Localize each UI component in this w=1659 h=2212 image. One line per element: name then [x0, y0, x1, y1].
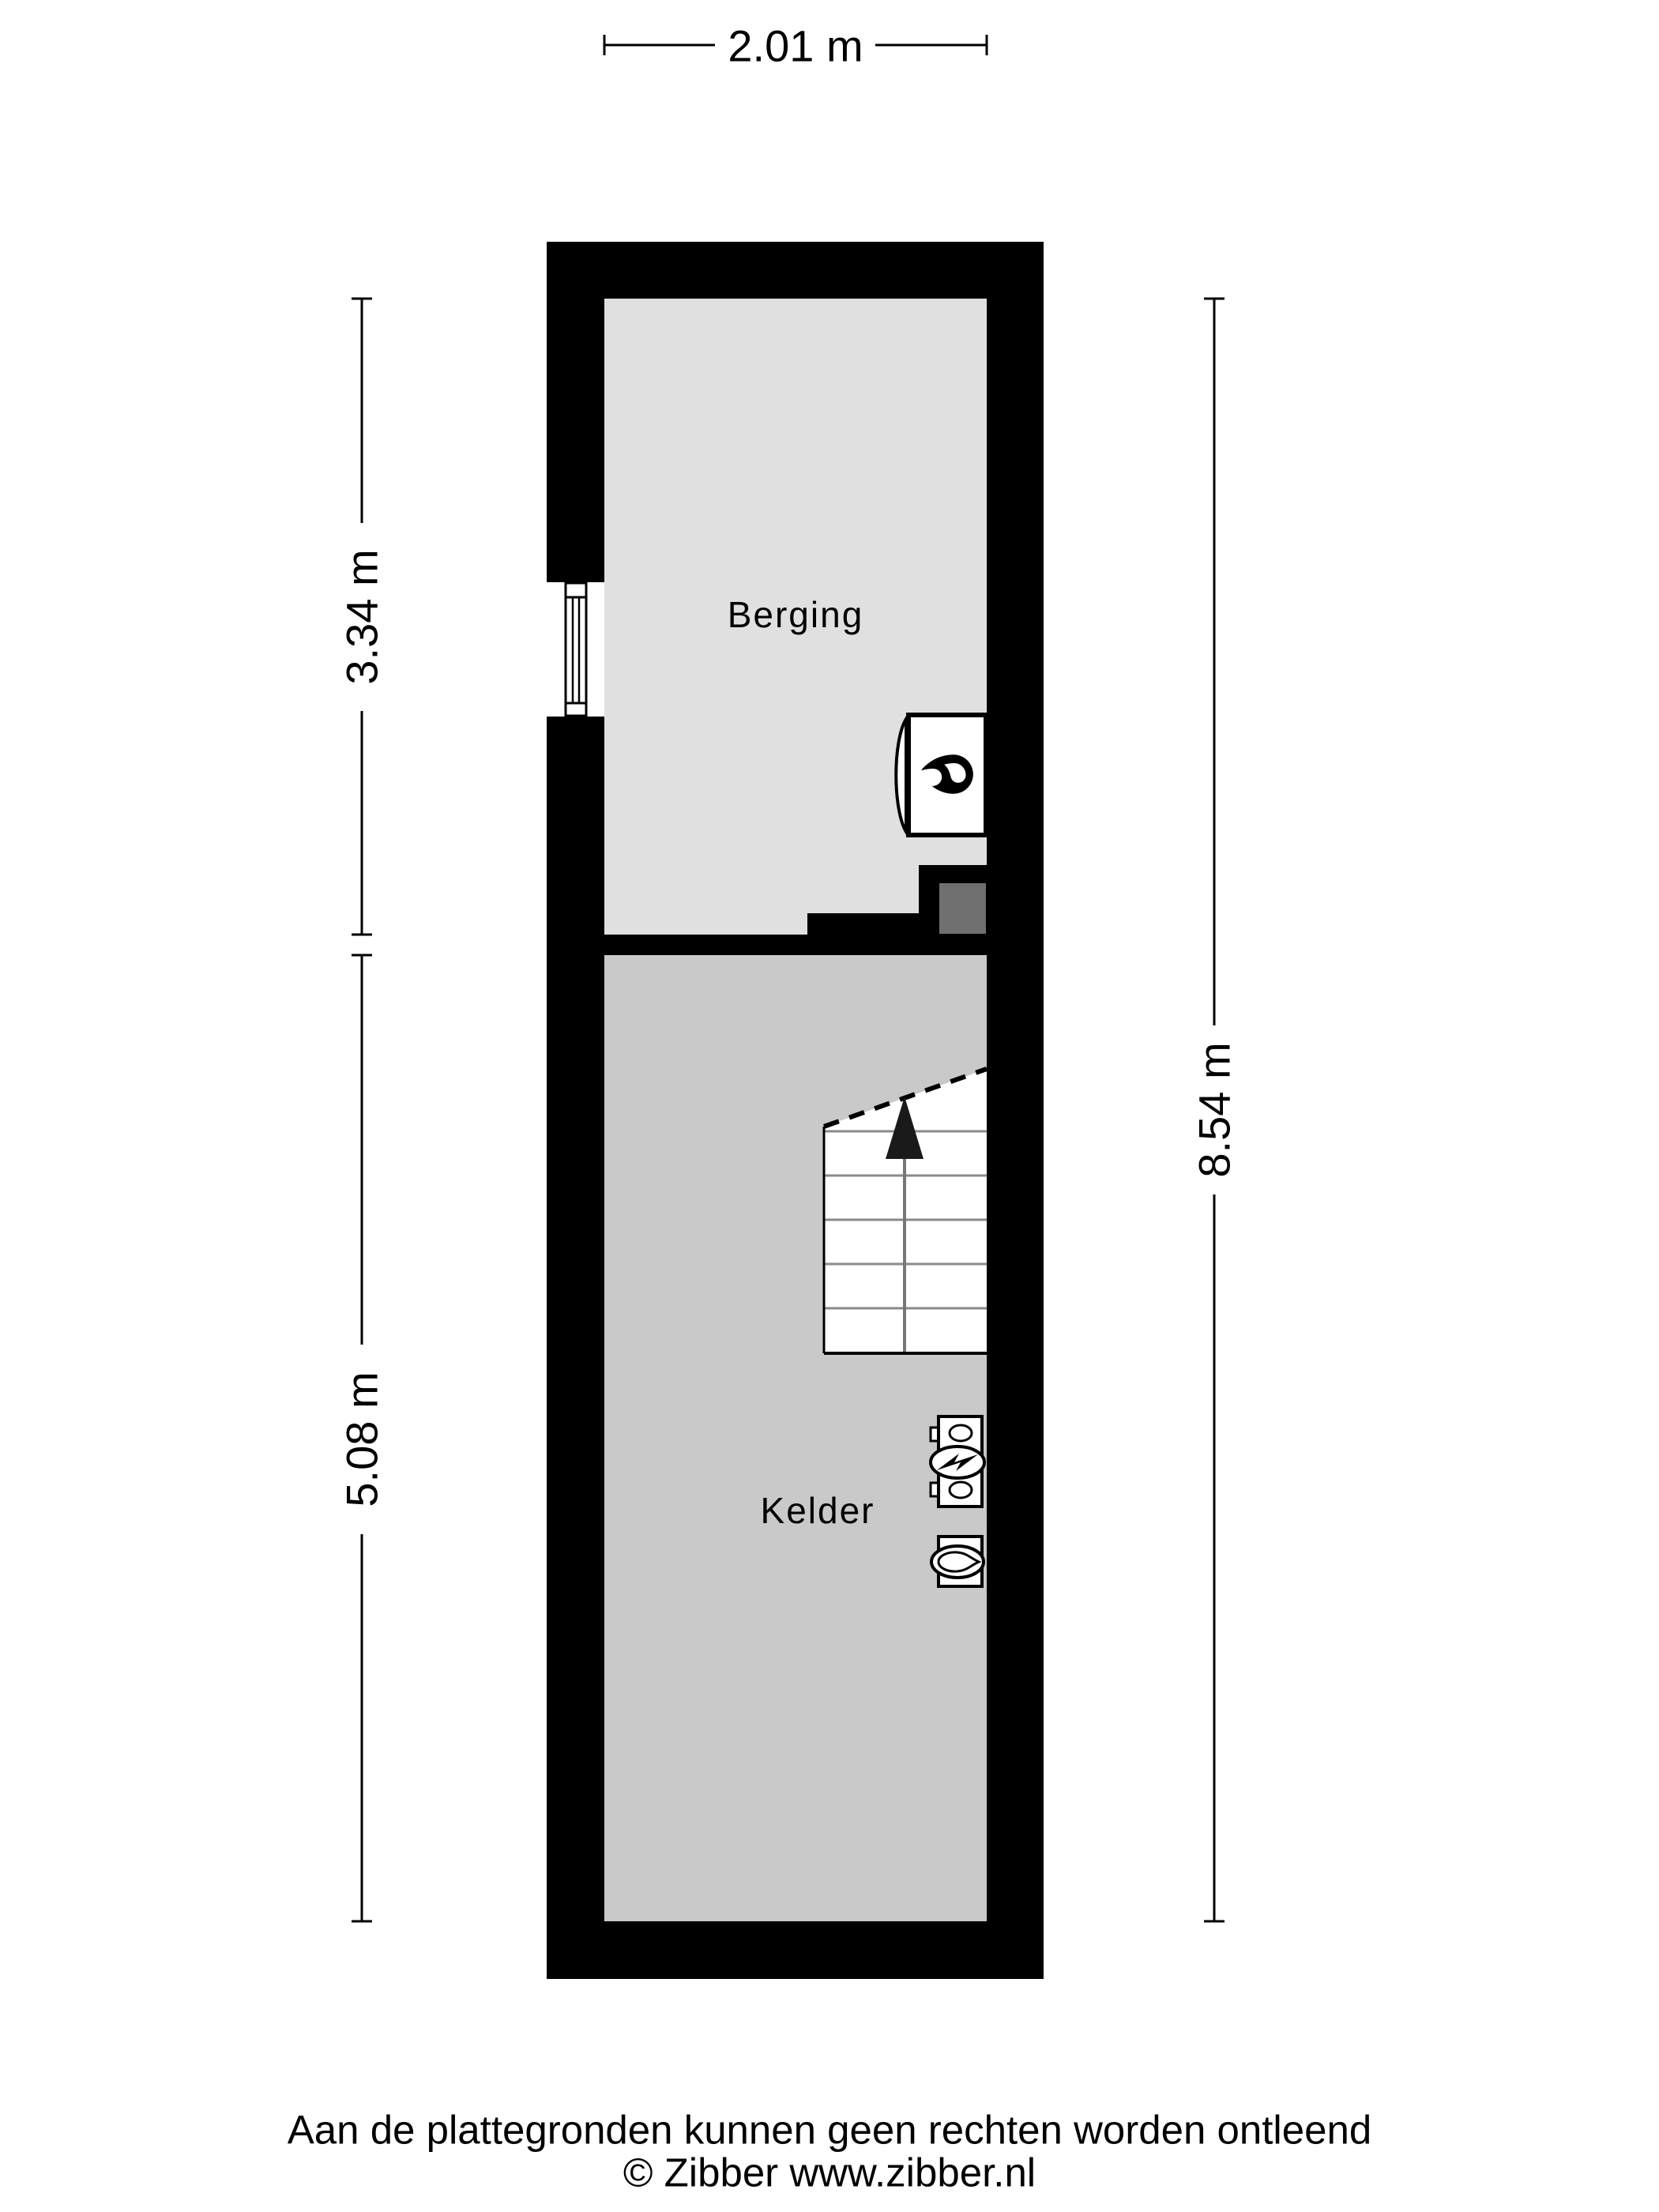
dimension-right: 8.54 m [1190, 299, 1240, 1921]
room-label-kelder: Kelder [761, 1490, 875, 1531]
window-frame [566, 583, 586, 716]
dimension-left-lower: 5.08 m [337, 955, 387, 1921]
gas-meter-icon [931, 1537, 984, 1586]
dimension-label-left-lower: 5.08 m [337, 1371, 387, 1507]
boiler-flame-icon [896, 715, 986, 835]
disclaimer-text: Aan de plattegronden kunnen geen rechten… [288, 2108, 1371, 2153]
dimension-label-right: 8.54 m [1190, 1042, 1240, 1177]
room-label-berging: Berging [728, 594, 864, 635]
dimension-top: 2.01 m [604, 21, 987, 71]
floor-plan-canvas: 2.01 m 3.34 m 5.08 m 8.54 m [0, 0, 1659, 2212]
electric-meter-icon [931, 1416, 984, 1507]
step-tread [939, 883, 986, 934]
dimension-label-top: 2.01 m [728, 21, 863, 71]
copyright-text: © Zibber www.zibber.nl [623, 2150, 1036, 2195]
footer: Aan de plattegronden kunnen geen rechten… [288, 2108, 1371, 2195]
floor-plan: Berging Kelder [547, 242, 1044, 1979]
meter-dial [950, 1425, 972, 1441]
dimension-label-left-upper: 3.34 m [337, 549, 387, 684]
meter-dial [950, 1482, 972, 1498]
window-symbol-icon [547, 582, 604, 717]
dimension-left-upper: 3.34 m [337, 299, 387, 935]
